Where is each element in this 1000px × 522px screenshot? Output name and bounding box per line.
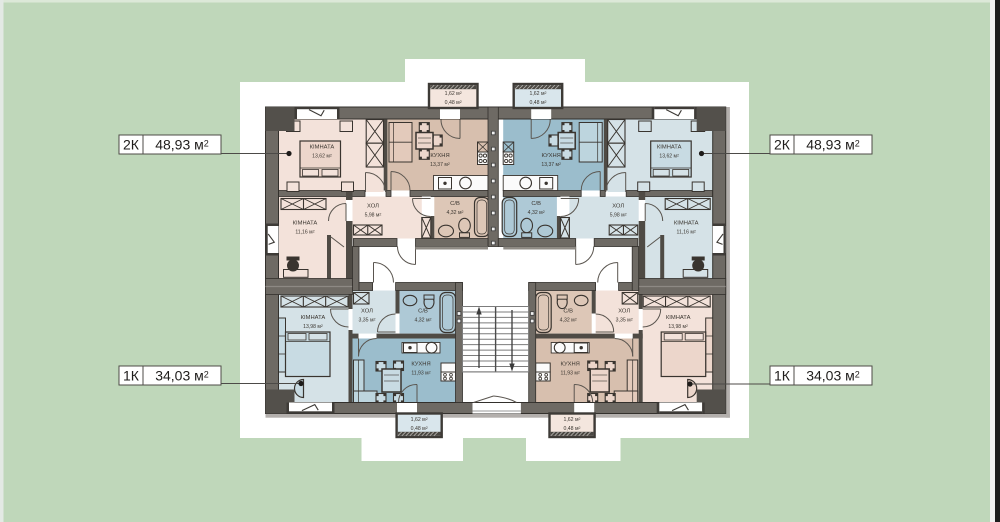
svg-text:КІМНАТА: КІМНАТА [293,221,318,227]
svg-text:4,32 м2: 4,32 м2 [560,317,577,323]
svg-text:13,37 м2: 13,37 м2 [430,162,450,168]
svg-text:С/В: С/В [450,201,460,207]
svg-text:48,93 м2: 48,93 м2 [806,137,860,153]
svg-text:4,32 м2: 4,32 м2 [414,317,431,323]
svg-text:3,35 м2: 3,35 м2 [616,317,633,323]
svg-text:1К: 1К [774,368,791,384]
svg-text:1,62 м2: 1,62 м2 [445,91,462,97]
svg-text:1,62 м2: 1,62 м2 [411,417,428,423]
svg-text:5,98 м2: 5,98 м2 [610,212,627,218]
svg-text:34,03 м2: 34,03 м2 [806,368,860,384]
svg-text:0,48 м2: 0,48 м2 [563,426,580,432]
svg-text:ХОЛ: ХОЛ [612,204,624,210]
svg-text:ХОЛ: ХОЛ [367,204,379,210]
svg-text:2К: 2К [774,137,791,153]
svg-text:48,93 м2: 48,93 м2 [155,137,209,153]
svg-text:4,32 м2: 4,32 м2 [446,210,463,216]
svg-text:КІМНАТА: КІМНАТА [301,315,326,321]
svg-text:1,62 м2: 1,62 м2 [529,91,546,97]
svg-text:13,98 м2: 13,98 м2 [303,324,323,330]
svg-text:0,48 м2: 0,48 м2 [445,100,462,106]
svg-text:КІМНАТА: КІМНАТА [657,145,682,151]
svg-text:4,32 м2: 4,32 м2 [528,210,545,216]
svg-text:КУХНЯ: КУХНЯ [411,362,430,368]
svg-text:1К: 1К [123,368,140,384]
svg-text:КІМНАТА: КІМНАТА [310,145,335,151]
svg-text:КУХНЯ: КУХНЯ [430,153,449,159]
svg-text:5,98 м2: 5,98 м2 [365,212,382,218]
svg-text:С/В: С/В [563,309,573,315]
svg-text:ХОЛ: ХОЛ [618,309,630,315]
svg-text:0,48 м2: 0,48 м2 [411,426,428,432]
svg-text:13,98 м2: 13,98 м2 [668,324,688,330]
svg-text:13,62 м2: 13,62 м2 [312,153,332,159]
svg-text:3,35 м2: 3,35 м2 [358,317,375,323]
svg-text:13,62 м2: 13,62 м2 [659,153,679,159]
svg-text:КУХНЯ: КУХНЯ [561,362,580,368]
svg-text:0,48 м2: 0,48 м2 [529,100,546,106]
svg-text:КІМНАТА: КІМНАТА [674,221,699,227]
svg-text:34,03 м2: 34,03 м2 [155,368,209,384]
svg-text:11,16 м2: 11,16 м2 [677,229,696,235]
svg-text:11,93 м2: 11,93 м2 [561,370,580,376]
svg-text:11,93 м2: 11,93 м2 [411,370,430,376]
svg-text:13,37 м2: 13,37 м2 [541,162,561,168]
svg-text:1,62 м2: 1,62 м2 [563,417,580,423]
svg-text:С/В: С/В [531,201,541,207]
svg-text:КІМНАТА: КІМНАТА [666,315,691,321]
svg-text:ХОЛ: ХОЛ [361,309,373,315]
svg-text:11,16 м2: 11,16 м2 [295,229,314,235]
svg-text:КУХНЯ: КУХНЯ [542,153,561,159]
svg-text:С/В: С/В [418,309,428,315]
svg-text:2К: 2К [123,137,140,153]
